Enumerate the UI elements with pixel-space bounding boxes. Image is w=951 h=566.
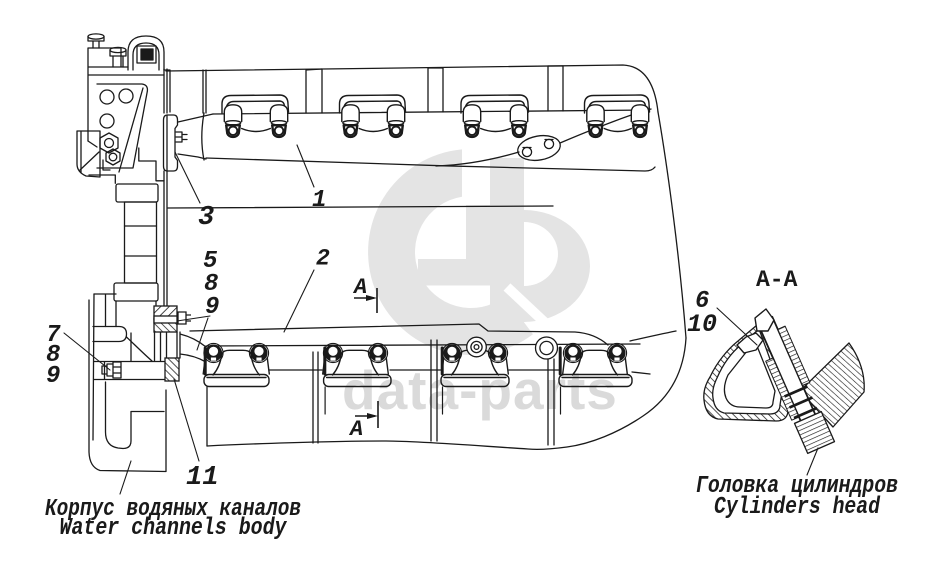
- svg-text:1: 1: [312, 187, 326, 214]
- svg-text:A: A: [348, 417, 363, 442]
- svg-text:Cylinders head: Cylinders head: [714, 494, 880, 521]
- svg-text:Water channels body: Water channels body: [60, 515, 288, 542]
- svg-text:A-A: A-A: [756, 267, 798, 293]
- svg-text:A: A: [352, 275, 367, 300]
- svg-text:9: 9: [46, 363, 60, 390]
- svg-text:3: 3: [198, 203, 214, 233]
- svg-text:10: 10: [687, 310, 717, 339]
- svg-text:9: 9: [205, 294, 219, 321]
- svg-text:11: 11: [186, 463, 218, 493]
- svg-text:2: 2: [316, 246, 330, 272]
